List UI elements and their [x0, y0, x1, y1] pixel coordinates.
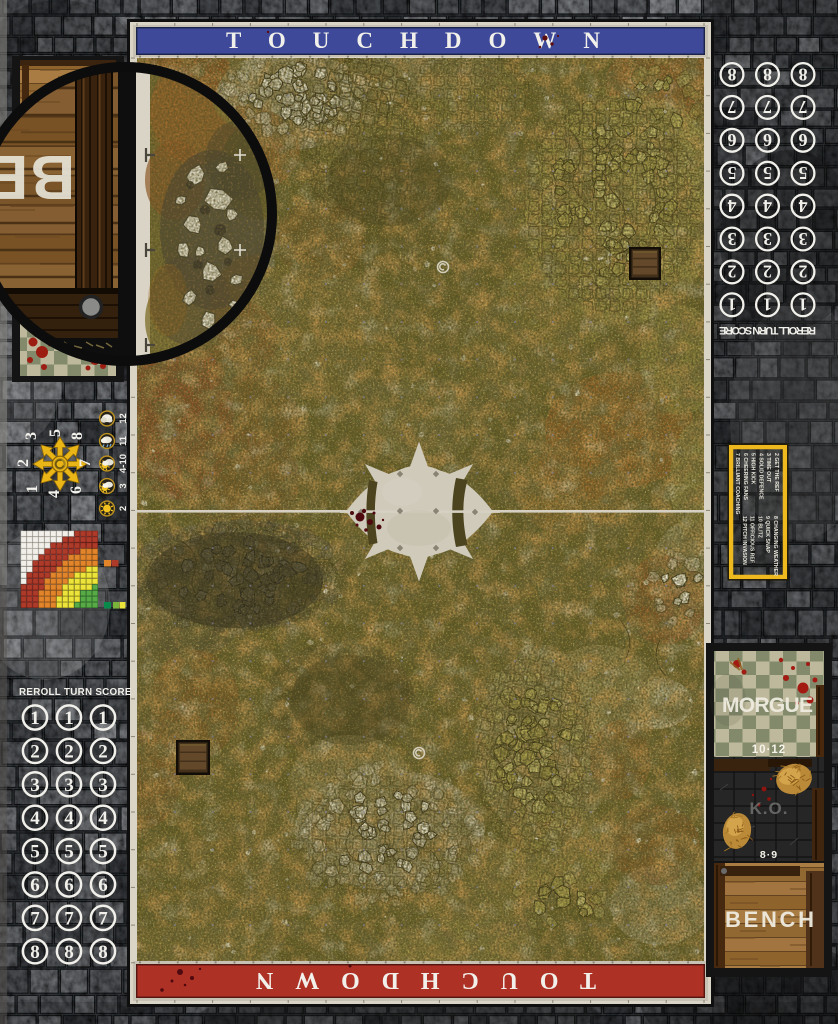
svg-text:BENCH: BENCH: [725, 907, 815, 932]
svg-text:3: 3: [30, 775, 40, 796]
svg-text:6: 6: [68, 486, 85, 494]
svg-text:8: 8: [98, 942, 108, 963]
svg-text:10·12: 10·12: [752, 744, 786, 756]
svg-text:8: 8: [763, 64, 772, 84]
svg-text:4: 4: [728, 196, 737, 216]
svg-text:6: 6: [799, 130, 808, 150]
svg-text:2: 2: [799, 262, 808, 282]
svg-text:4: 4: [98, 808, 108, 829]
svg-text:4-10: 4-10: [118, 454, 129, 473]
svg-text:1: 1: [98, 708, 108, 729]
svg-text:4: 4: [799, 196, 808, 216]
svg-text:3: 3: [763, 229, 772, 249]
svg-text:2: 2: [728, 262, 737, 282]
svg-text:2: 2: [118, 506, 129, 511]
svg-text:3: 3: [64, 775, 74, 796]
svg-text:4: 4: [46, 490, 63, 498]
svg-text:8: 8: [799, 64, 808, 84]
svg-text:4 SOLID DEFENCE: 4 SOLID DEFENCE: [757, 453, 763, 500]
svg-text:TOUCHDOWN: TOUCHDOWN: [244, 967, 596, 993]
svg-text:7: 7: [64, 908, 74, 929]
svg-text:6: 6: [30, 875, 40, 896]
svg-text:1: 1: [24, 485, 41, 493]
svg-text:7: 7: [98, 908, 108, 929]
svg-text:6: 6: [763, 130, 772, 150]
svg-text:1: 1: [30, 708, 40, 729]
svg-text:5: 5: [728, 163, 737, 183]
svg-text:8·9: 8·9: [760, 849, 778, 861]
svg-text:3: 3: [799, 229, 808, 249]
svg-text:K.O.: K.O.: [750, 799, 789, 818]
svg-text:2: 2: [763, 262, 772, 282]
svg-text:8: 8: [64, 942, 74, 963]
svg-text:8: 8: [30, 942, 40, 963]
svg-text:7: 7: [763, 97, 772, 117]
svg-text:3 TIME OUT: 3 TIME OUT: [765, 453, 771, 483]
svg-text:MORGUE: MORGUE: [722, 694, 814, 717]
svg-text:6: 6: [98, 875, 108, 896]
svg-text:3: 3: [98, 775, 108, 796]
svg-text:10 BLITZ: 10 BLITZ: [756, 516, 762, 539]
svg-text:12: 12: [118, 413, 129, 424]
svg-text:2: 2: [15, 459, 32, 467]
svg-text:1: 1: [763, 295, 772, 315]
svg-text:4: 4: [30, 808, 40, 829]
svg-text:1: 1: [64, 708, 74, 729]
svg-text:1: 1: [799, 295, 808, 315]
svg-text:5: 5: [799, 163, 808, 183]
svg-text:5: 5: [763, 163, 772, 183]
svg-text:2: 2: [64, 741, 74, 762]
svg-text:7: 7: [728, 97, 737, 117]
svg-text:4: 4: [64, 808, 74, 829]
svg-text:5: 5: [47, 429, 64, 437]
svg-text:2 GET THE REF: 2 GET THE REF: [773, 453, 779, 492]
svg-text:8: 8: [728, 64, 737, 84]
svg-text:11 OFFICIOUS REF: 11 OFFICIOUS REF: [749, 516, 755, 563]
svg-text:REROLL TURN SCORE: REROLL TURN SCORE: [19, 687, 132, 698]
svg-text:7: 7: [799, 97, 808, 117]
svg-text:6 CHEERING FANS: 6 CHEERING FANS: [742, 453, 748, 501]
svg-text:3: 3: [728, 229, 737, 249]
svg-text:BE: BE: [0, 142, 75, 211]
svg-text:REROLL TURN SCORE: REROLL TURN SCORE: [719, 324, 816, 336]
svg-text:5: 5: [98, 842, 108, 863]
svg-text:5 HIGH KICK: 5 HIGH KICK: [750, 453, 756, 485]
svg-text:11: 11: [118, 435, 129, 446]
svg-text:TOUCHDOWN: TOUCHDOWN: [226, 28, 614, 53]
svg-text:2: 2: [30, 741, 40, 762]
svg-text:5: 5: [64, 842, 74, 863]
svg-text:5: 5: [30, 842, 40, 863]
svg-text:6: 6: [728, 130, 737, 150]
svg-text:3: 3: [23, 432, 40, 440]
svg-text:8 CHANGING WEATHER: 8 CHANGING WEATHER: [772, 516, 778, 576]
svg-text:3: 3: [118, 483, 129, 488]
svg-text:6: 6: [64, 875, 74, 896]
svg-text:7: 7: [30, 908, 40, 929]
svg-text:9 QUICK SNAP: 9 QUICK SNAP: [764, 516, 770, 553]
svg-text:12 PITCH INVASION: 12 PITCH INVASION: [741, 516, 747, 565]
svg-text:7: 7: [77, 459, 94, 467]
svg-text:7 BRILLIANT COACHING: 7 BRILLIANT COACHING: [734, 453, 740, 514]
svg-text:8: 8: [69, 432, 86, 440]
svg-text:4: 4: [763, 196, 772, 216]
svg-text:2: 2: [98, 741, 108, 762]
svg-text:1: 1: [728, 295, 737, 315]
